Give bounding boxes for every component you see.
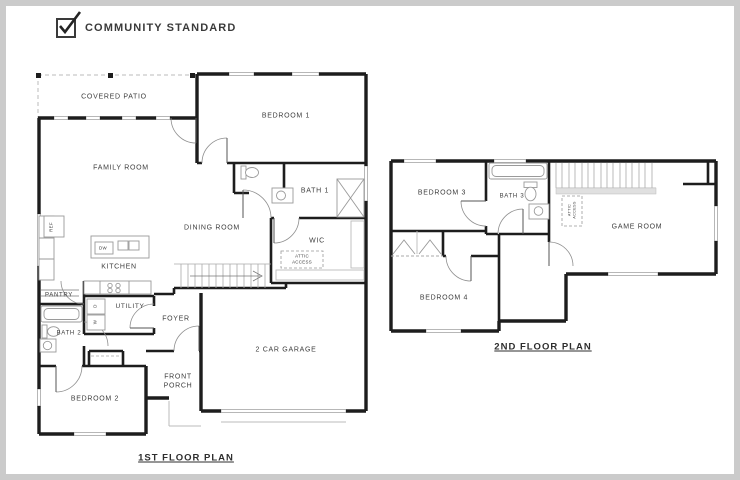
label-dishwasher: DW xyxy=(99,245,107,251)
sink-bowl xyxy=(43,341,51,349)
toilet-bowl xyxy=(525,187,536,201)
checkmark-icon xyxy=(56,10,82,38)
label-attic-access-2: ATTIC ACCESS xyxy=(567,197,576,223)
sink-bowl xyxy=(534,207,543,216)
first-floor-plan: COVERED PATIO FAMILY ROOM BEDROOM 1 BATH… xyxy=(34,66,384,441)
room-label-front-porch: FRONT PORCH xyxy=(155,373,201,391)
room-label-dining-room: DINING ROOM xyxy=(184,225,240,234)
label-refrigerator: REF xyxy=(48,222,54,232)
room-label-pantry: PANTRY xyxy=(45,292,73,300)
room-label-game-room: GAME ROOM xyxy=(612,224,663,233)
room-label-bath-1: BATH 1 xyxy=(301,188,329,197)
plan-option-header: COMMUNITY STANDARD xyxy=(56,18,236,38)
second-floor-plan: BEDROOM 3 BATH 3 GAME ROOM BEDROOM 4 ATT… xyxy=(386,146,721,341)
porch-and-driveway-lines xyxy=(169,401,346,426)
first-floor-title: 1ST FLOOR PLAN xyxy=(138,453,234,464)
room-label-foyer: FOYER xyxy=(162,316,190,325)
stairs xyxy=(174,264,271,288)
second-floor-title: 2ND FLOOR PLAN xyxy=(494,342,591,353)
bath2-fixtures xyxy=(40,306,82,352)
room-label-utility: UTILITY xyxy=(115,303,144,311)
bath3-fixtures xyxy=(489,163,549,219)
label-dryer: D xyxy=(92,304,98,307)
room-label-bedroom-4: BEDROOM 4 xyxy=(420,295,468,304)
room-label-bedroom-3: BEDROOM 3 xyxy=(418,190,466,199)
room-label-bath-3: BATH 3 xyxy=(499,193,525,201)
sink-basin-right xyxy=(129,241,139,250)
label-attic-access-1: ATTIC ACCESS xyxy=(286,254,318,265)
room-label-garage: 2 CAR GARAGE xyxy=(256,347,317,356)
room-label-covered-patio: COVERED PATIO xyxy=(81,94,147,103)
door-swings xyxy=(446,201,573,281)
windows xyxy=(404,160,718,333)
room-label-bath-2: BATH 2 xyxy=(56,330,82,338)
toilet-tank xyxy=(42,325,47,338)
floorplan-sheet: COMMUNITY STANDARD xyxy=(0,0,740,480)
community-standard-label: COMMUNITY STANDARD xyxy=(85,22,236,34)
room-label-bedroom-2: BEDROOM 2 xyxy=(71,396,119,405)
room-label-kitchen: KITCHEN xyxy=(101,264,137,273)
room-label-family-room: FAMILY ROOM xyxy=(93,165,149,174)
exterior-walls xyxy=(391,161,716,331)
room-label-bedroom-1: BEDROOM 1 xyxy=(262,113,310,122)
sink-bowl xyxy=(277,191,286,200)
toilet-bowl xyxy=(246,168,259,178)
room-label-wic: WIC xyxy=(309,238,325,247)
second-floor-drawing xyxy=(386,146,721,341)
sink-basin-left xyxy=(118,241,128,250)
kitchen-fixtures xyxy=(39,216,151,296)
toilet-tank xyxy=(524,182,537,188)
community-standard-checkbox[interactable] xyxy=(56,18,76,38)
refrigerator xyxy=(44,216,64,237)
first-floor-drawing xyxy=(34,66,384,441)
stairs xyxy=(556,163,656,194)
closet-bifold-doors xyxy=(391,231,443,256)
label-washer: W xyxy=(92,320,98,324)
